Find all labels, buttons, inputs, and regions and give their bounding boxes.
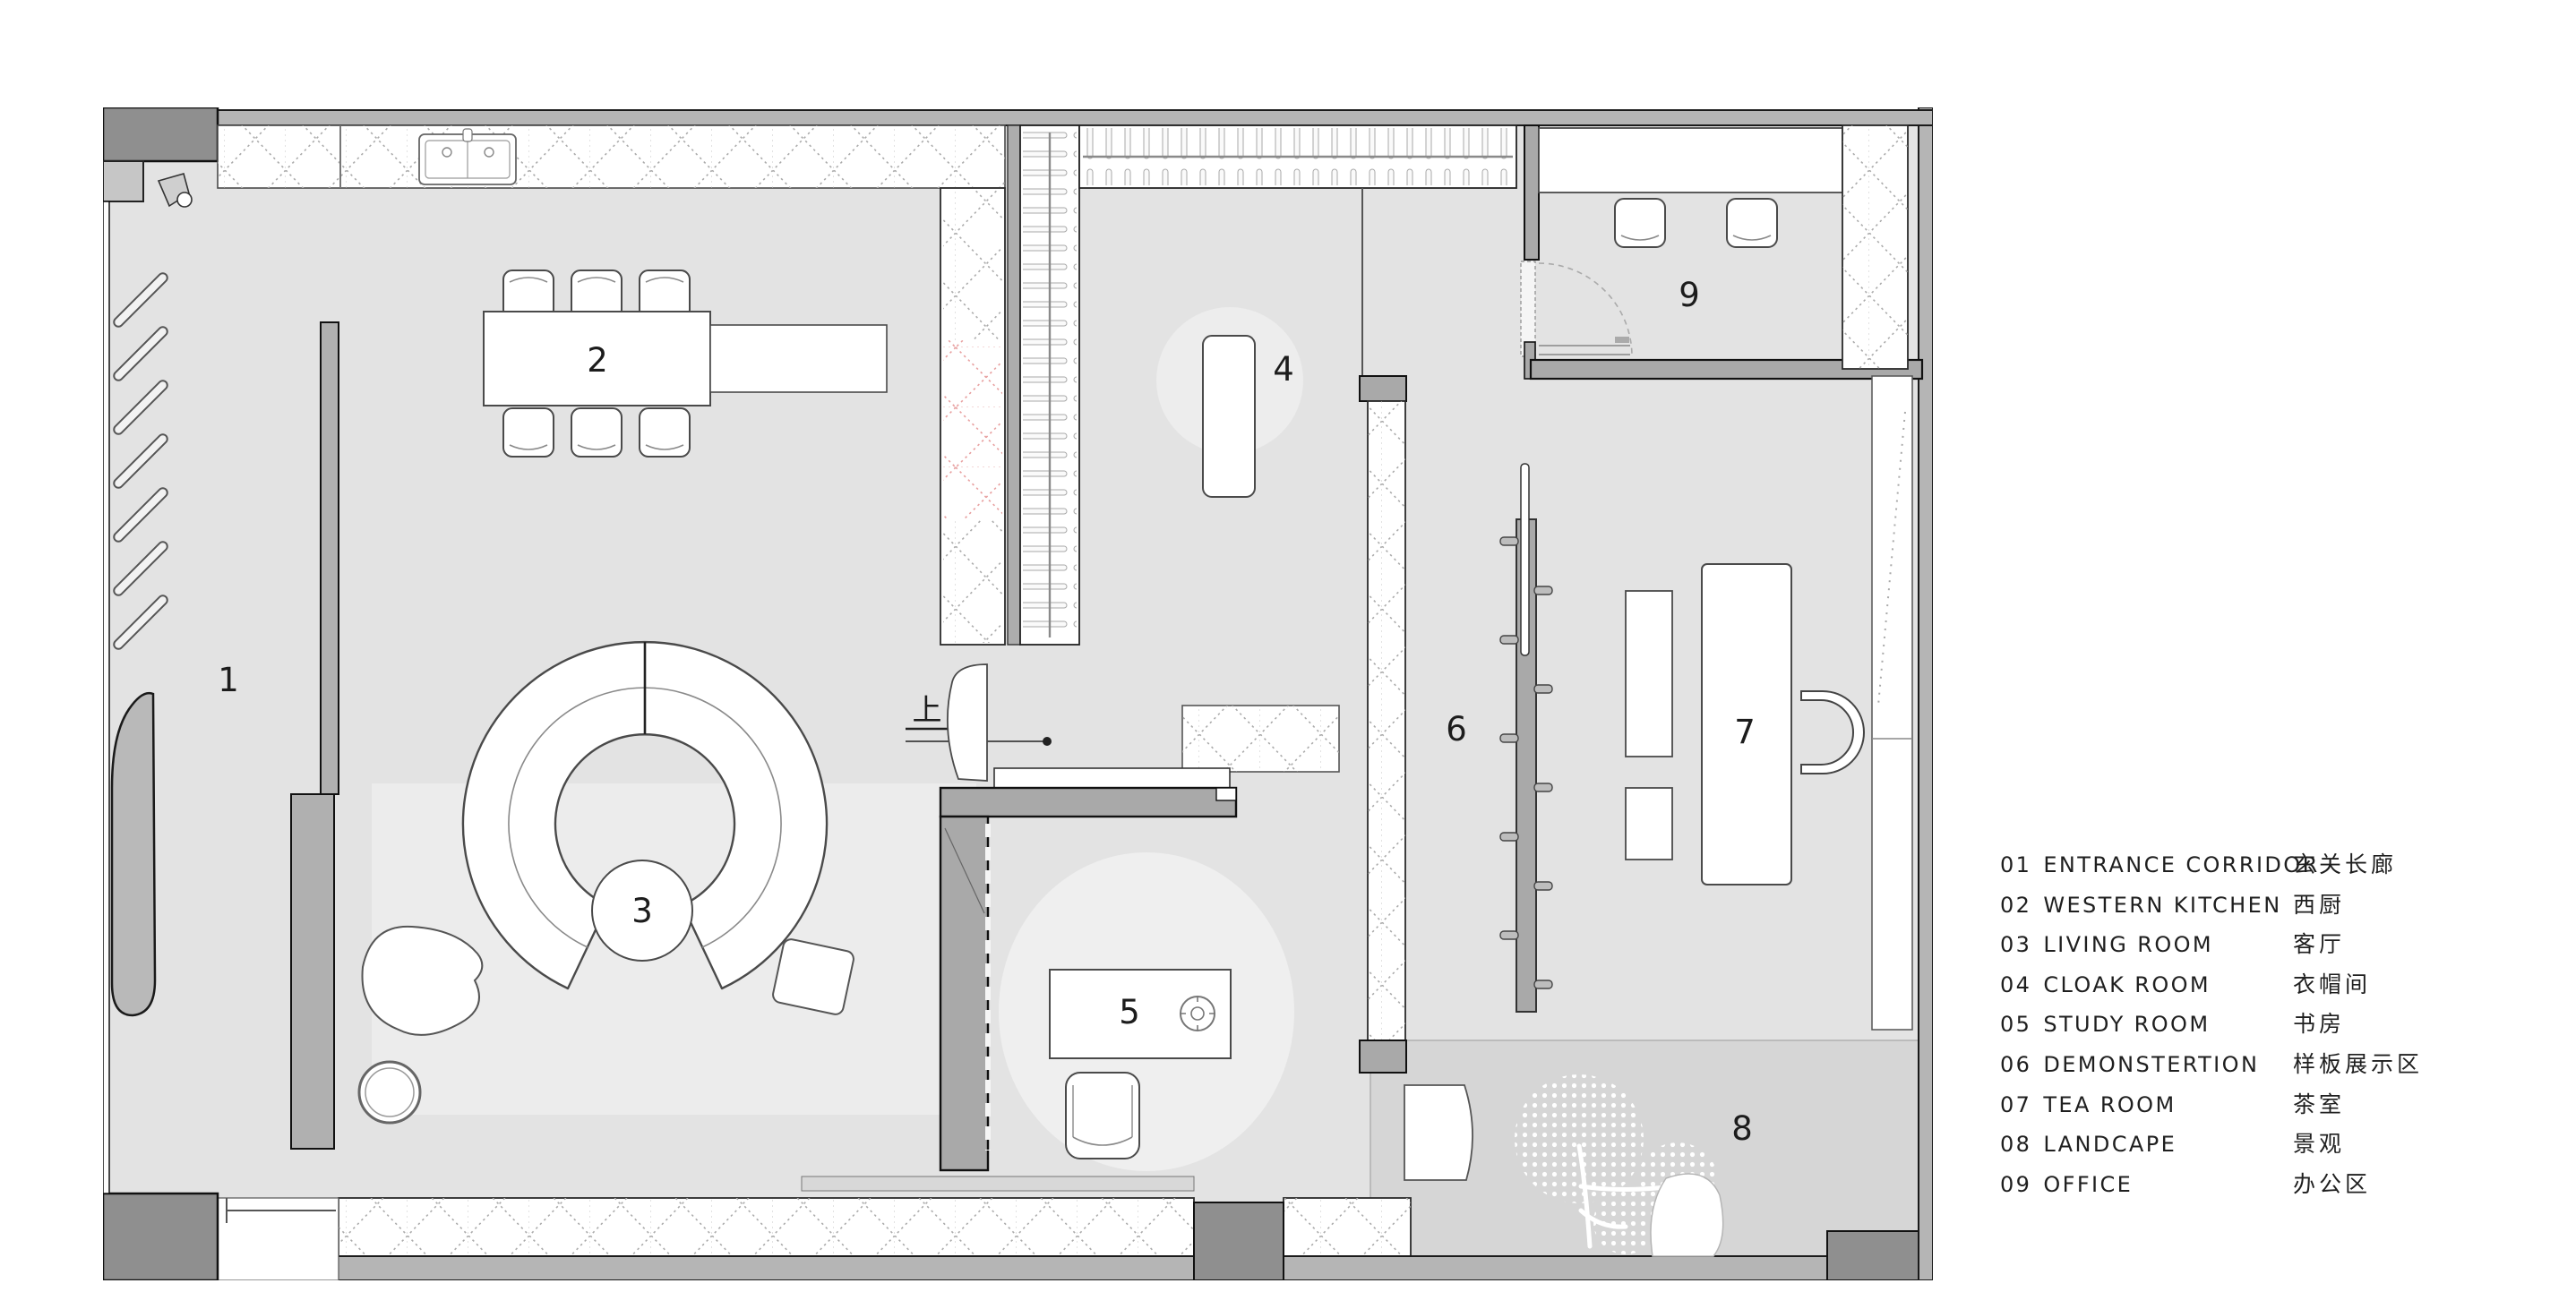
bottom-cabinet-right	[1284, 1198, 1411, 1256]
legend-en: ENTRANCE CORRIDOR	[2043, 852, 2319, 877]
legend-en: TEA ROOM	[2043, 1092, 2176, 1117]
cloak-divider-wall	[1008, 125, 1020, 645]
study-wall-notch	[1216, 788, 1236, 800]
wardrobe-vertical	[1020, 125, 1079, 645]
cloak-low-bench	[1182, 706, 1339, 772]
tea-bench-long	[1626, 591, 1672, 757]
legend-zh: 茶室	[2293, 1087, 2345, 1119]
stair-up-label: 上	[913, 692, 942, 727]
floor-plan-page: 2 1 3 4	[0, 0, 2576, 1309]
desk-lamp	[1181, 997, 1215, 1031]
glass-facade-wall	[103, 201, 109, 1193]
side-table	[771, 937, 854, 1015]
legend-num: 09	[2000, 1172, 2031, 1197]
legend-en: CLOAK ROOM	[2043, 972, 2211, 997]
study-chair	[1066, 1073, 1139, 1159]
bottom-column	[1194, 1202, 1284, 1280]
floor-plan-drawing: 2 1 3 4	[103, 107, 1933, 1280]
legend-en: OFFICE	[2043, 1172, 2133, 1197]
legend-row: 07TEA ROOM 茶室	[2000, 1087, 2555, 1109]
room-label-8: 8	[1731, 1109, 1753, 1148]
legend-en: LIVING ROOM	[2043, 932, 2213, 957]
legend-row: 04CLOAK ROOM 衣帽间	[2000, 967, 2555, 989]
legend-row: 06DEMONSTERTION 样板展示区	[2000, 1047, 2555, 1069]
study-wall-top	[940, 788, 1236, 817]
lounge-chair	[363, 927, 483, 1035]
legend-num: 08	[2000, 1132, 2031, 1157]
office-desk	[1539, 128, 1842, 192]
legend-zh: 办公区	[2293, 1167, 2371, 1199]
legend-num: 05	[2000, 1012, 2031, 1037]
corridor-pier-wall	[291, 794, 334, 1149]
legend-en: LANDCAPE	[2043, 1132, 2177, 1157]
legend-row: 09OFFICE 办公区	[2000, 1167, 2555, 1189]
legend-num: 03	[2000, 932, 2031, 957]
legend-row: 03LIVING ROOM 客厅	[2000, 927, 2555, 949]
corner-column-bottom-left	[103, 1193, 218, 1280]
top-wall	[218, 110, 1933, 125]
room-label-5: 5	[1119, 993, 1140, 1031]
tall-cabinet-hatched	[940, 188, 1005, 645]
dining-chairs-bottom	[503, 408, 690, 457]
stair-curved-panel	[948, 664, 987, 781]
office-left-wall	[1524, 125, 1539, 260]
legend-zh: 书房	[2293, 1006, 2345, 1039]
legend-num: 06	[2000, 1052, 2031, 1077]
room-label-4: 4	[1273, 350, 1294, 389]
legend-en: STUDY ROOM	[2043, 1012, 2210, 1037]
office-cabinet	[1842, 125, 1908, 369]
legend-num: 07	[2000, 1092, 2031, 1117]
legend-num: 04	[2000, 972, 2031, 997]
legend-num: 01	[2000, 852, 2031, 877]
study-wall-shelf	[994, 768, 1230, 788]
legend-en: DEMONSTERTION	[2043, 1052, 2259, 1077]
legend-zh: 衣帽间	[2293, 967, 2371, 999]
entry-door-gap	[218, 1198, 339, 1280]
corner-column-bottom-right	[1827, 1231, 1933, 1280]
corner-column-top-left	[103, 107, 218, 161]
room-label-3: 3	[631, 892, 653, 930]
bottom-cabinet-left	[339, 1198, 1194, 1256]
room-label-7: 7	[1734, 713, 1756, 751]
planter-pot	[359, 1062, 420, 1123]
legend-zh: 景观	[2293, 1126, 2345, 1159]
room-label-1: 1	[218, 661, 239, 699]
legend-en: WESTERN KITCHEN	[2043, 893, 2281, 918]
legend-zh: 玄关长廊	[2293, 847, 2397, 879]
legend-zh: 客厅	[2293, 927, 2345, 959]
landscape-seat	[1404, 1085, 1473, 1180]
bottom-wall	[218, 1256, 1933, 1280]
dining-table-extension	[710, 325, 887, 392]
corridor-bench	[112, 693, 155, 1015]
cloak-island-bench	[1203, 336, 1255, 497]
room-label-9: 9	[1679, 276, 1700, 314]
legend-row: 01ENTRANCE CORRIDOR 玄关长廊	[2000, 847, 2555, 869]
legend-zh: 样板展示区	[2293, 1047, 2423, 1079]
right-wall	[1919, 107, 1933, 1280]
legend-row: 02WESTERN KITCHEN 西厨	[2000, 887, 2555, 910]
room-label-2: 2	[587, 341, 608, 380]
tea-bench-short	[1626, 788, 1672, 860]
corridor-partition-wall	[321, 322, 339, 794]
legend-zh: 西厨	[2293, 887, 2345, 920]
legend: 01ENTRANCE CORRIDOR 玄关长廊 02WESTERN KITCH…	[2000, 847, 2555, 1206]
legend-row: 08LANDCAPE 景观	[2000, 1126, 2555, 1149]
landscape-rock	[1651, 1174, 1723, 1256]
legend-num: 02	[2000, 893, 2031, 918]
room-label-6: 6	[1446, 710, 1467, 749]
threshold-strip	[802, 1176, 1194, 1191]
wardrobe-horizontal	[1079, 125, 1516, 188]
tea-sideboard	[1872, 376, 1912, 1030]
wall-block	[103, 161, 143, 201]
kitchen-sink	[419, 129, 516, 184]
kitchen-cabinets	[218, 125, 1005, 188]
legend-row: 05STUDY ROOM 书房	[2000, 1006, 2555, 1029]
